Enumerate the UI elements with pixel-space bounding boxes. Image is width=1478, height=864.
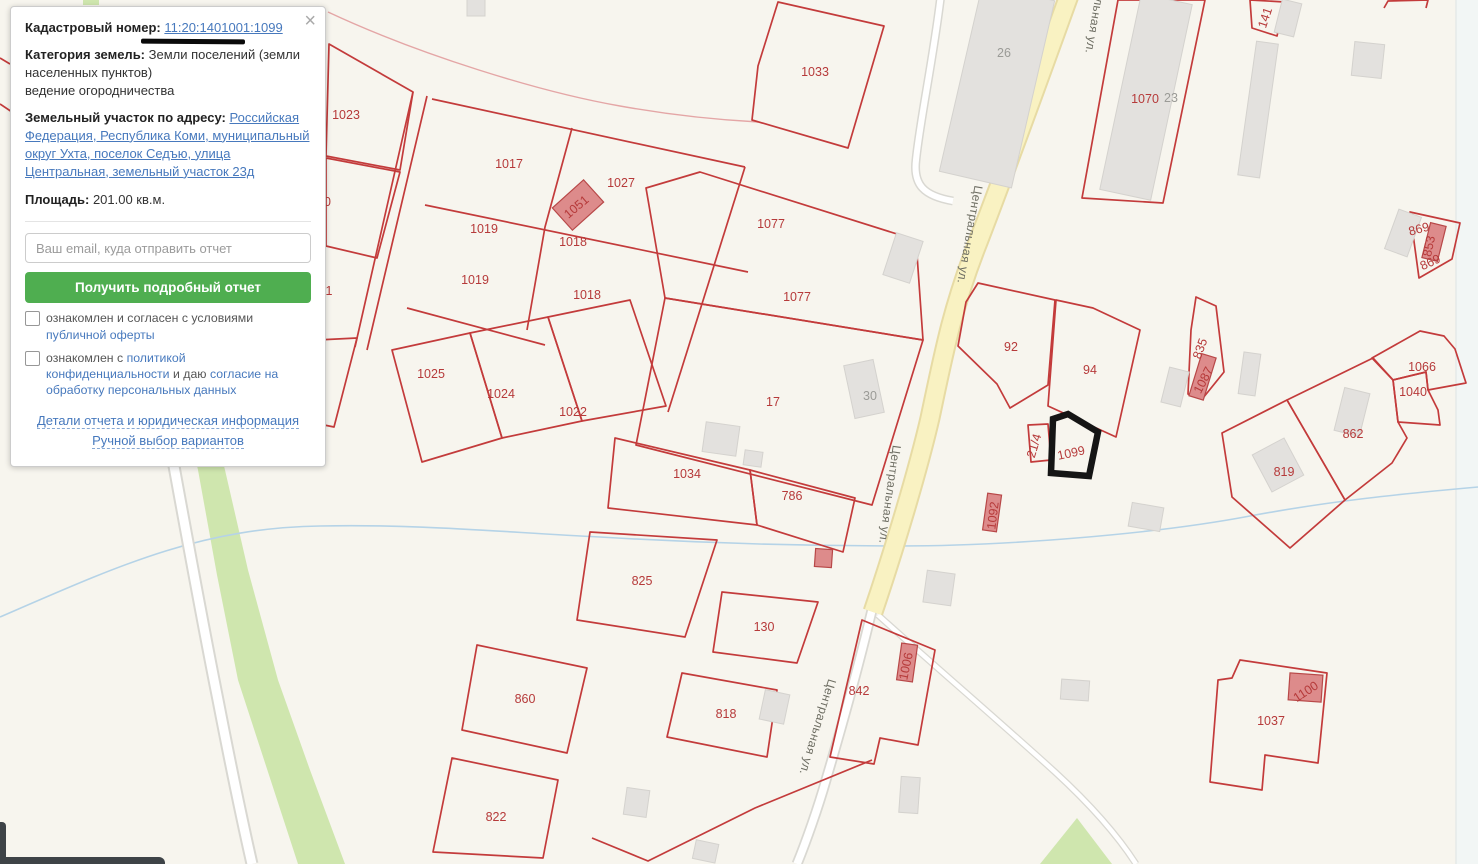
- report-details-link[interactable]: Детали отчета и юридическая информация: [37, 414, 299, 429]
- area-label: Площадь:: [25, 192, 89, 207]
- parcel-number-label: 1018: [559, 235, 587, 249]
- parcel-number-label: 1019: [461, 273, 489, 287]
- cadastral-number-line: Кадастровый номер: 11:20:1401001:1099: [25, 19, 311, 37]
- offer-consent-text: ознакомлен и согласен с условиями публич…: [46, 310, 311, 342]
- parcel-number-label: 818: [716, 707, 737, 721]
- parcel-number-label: 819: [1274, 465, 1295, 479]
- parcel-number-label: 1070: [1131, 92, 1159, 106]
- cadastral-number-label: Кадастровый номер:: [25, 20, 161, 35]
- parcel-number-label: 1033: [801, 65, 829, 79]
- parcel-number-label: 30: [863, 389, 877, 403]
- address-label: Земельный участок по адресу:: [25, 110, 226, 125]
- parcel-number-label: 862: [1343, 427, 1364, 441]
- parcel-number-label: 1017: [495, 157, 523, 171]
- parcel-number-label: 17: [766, 395, 780, 409]
- privacy-consent-text: ознакомлен с политикой конфиденциальност…: [46, 350, 311, 399]
- privacy-consent-text-part1: ознакомлен с: [46, 351, 123, 365]
- map-tile-edge: [1456, 0, 1478, 864]
- parcel-number-label: 1034: [673, 467, 701, 481]
- cadastral-number-link[interactable]: 11:20:1401001:1099: [164, 20, 282, 35]
- parcel-number-label: 1023: [332, 108, 360, 122]
- offer-checkbox[interactable]: [25, 311, 40, 326]
- parcel-number-label: 1024: [487, 387, 515, 401]
- parcel-number-label: 1040: [1399, 385, 1427, 399]
- parcel-info-panel: × Кадастровый номер: 11:20:1401001:1099 …: [10, 6, 326, 467]
- parcel-number-label: 822: [486, 810, 507, 824]
- manual-selection-link[interactable]: Ручной выбор вариантов: [92, 434, 244, 449]
- land-category-block: Категория земель: Земли поселений (земли…: [25, 46, 311, 100]
- parcel-number-label: 23: [1164, 91, 1178, 105]
- address-block: Земельный участок по адресу: Российская …: [25, 109, 311, 181]
- panel-divider: [25, 221, 311, 222]
- bottom-bar-corner: [0, 822, 6, 864]
- parcel-number-label: 1077: [783, 290, 811, 304]
- parcel-number-label: 786: [782, 489, 803, 503]
- land-use-value: ведение огородничества: [25, 82, 311, 100]
- parcel-number-label: 1025: [417, 367, 445, 381]
- cadastral-number-marker: [141, 39, 245, 44]
- land-category-label: Категория земель:: [25, 47, 145, 62]
- parcel-number-label: 1027: [607, 176, 635, 190]
- parcel-number-label: 1: [326, 284, 333, 298]
- parcel-number-label: 26: [997, 46, 1011, 60]
- bottom-bar: [0, 857, 165, 864]
- parcel-number-label: 860: [515, 692, 536, 706]
- offer-consent-text-part: ознакомлен и согласен с условиями: [46, 311, 253, 325]
- parcel-number-label: 1019: [470, 222, 498, 236]
- privacy-consent-text-part2: и даю: [173, 367, 207, 381]
- privacy-consent-row: ознакомлен с политикой конфиденциальност…: [25, 350, 311, 399]
- parcel-number-label: 1077: [757, 217, 785, 231]
- parcel-number-label: 1037: [1257, 714, 1285, 728]
- privacy-checkbox[interactable]: [25, 351, 40, 366]
- parcel-number-label: 130: [754, 620, 775, 634]
- get-report-button[interactable]: Получить подробный отчет: [25, 272, 311, 303]
- parcel-number-label: 825: [632, 574, 653, 588]
- parcel-number-label: 842: [849, 684, 870, 698]
- panel-footer-links: Детали отчета и юридическая информация Р…: [25, 414, 311, 455]
- parcel-number-label: 94: [1083, 363, 1097, 377]
- parcel-number-label: 1022: [559, 405, 587, 419]
- parcel-number-label: 1066: [1408, 360, 1436, 374]
- parcel-number-label: 1018: [573, 288, 601, 302]
- parcel-number-label: 92: [1004, 340, 1018, 354]
- email-input[interactable]: [25, 233, 311, 263]
- area-line: Площадь: 201.00 кв.м.: [25, 191, 311, 209]
- offer-consent-row: ознакомлен и согласен с условиями публич…: [25, 310, 311, 342]
- public-offer-link[interactable]: публичной оферты: [46, 328, 155, 342]
- area-value: 201.00 кв.м.: [93, 192, 165, 207]
